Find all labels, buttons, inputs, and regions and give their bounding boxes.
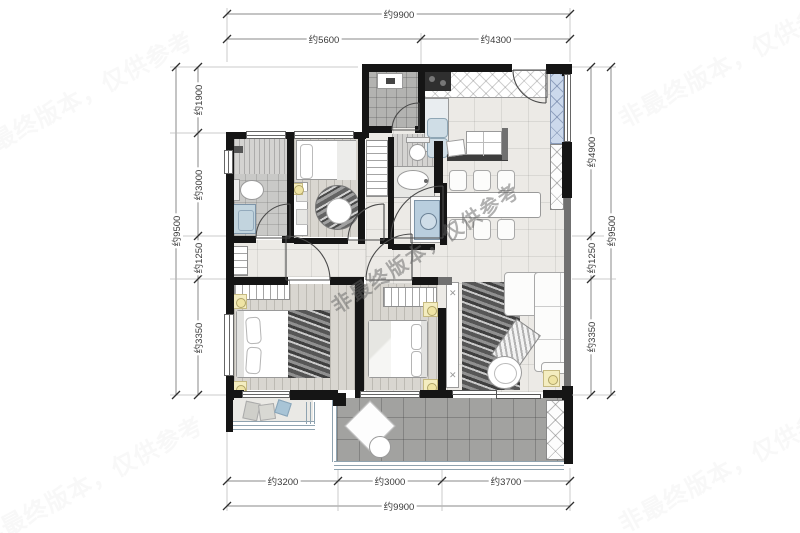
nightstand-lamp-icon [423,302,438,317]
dim-right-seg3: 约3350 [584,320,598,355]
dim-left-seg2: 约3000 [191,168,205,203]
wall [226,277,288,285]
dim-left-seg4: 约3350 [191,321,205,356]
watermark-corner: 非最终版本，仅供参考 [0,406,209,533]
accent-chair [487,356,522,389]
sliding-door-panel [452,390,497,395]
wall [564,198,571,388]
terrace-railing [231,421,315,433]
entry-cabinet-glass [550,70,564,144]
countertop-item [446,139,466,157]
watermark-corner: 非最终版本，仅供参考 [0,21,199,169]
floor-corridor [230,240,366,277]
wall [543,390,568,398]
dim-right-total: 约9500 [604,214,618,249]
sofa-body [534,272,568,372]
window [224,150,233,174]
shower-unit-icon [233,204,256,234]
sliding-door-panel [496,394,541,399]
wall [388,137,394,249]
wall [415,126,425,133]
corridor-cabinet [232,246,248,276]
stove-icon [425,72,451,91]
dim-top-seg1: 约5600 [307,32,342,46]
wall [333,393,346,406]
console-partition [502,128,508,160]
round-lounge-chair [315,185,360,230]
wall [362,64,512,72]
floor-lamp-icon [543,370,560,387]
dim-right-seg1: 约4900 [584,135,598,170]
toilet-bowl-icon [240,180,264,200]
window [242,391,290,398]
dim-bottom-total: 约9900 [382,499,417,513]
wall-fixture-icon [233,146,243,153]
toilet-bowl-icon [409,144,426,161]
dim-left-seg3: 约1250 [191,241,205,276]
wall [282,236,294,243]
toilet-tank-icon [406,137,430,143]
dining-chair [497,219,515,240]
bathroom-sink-icon [377,73,403,89]
balcony-railing-left [332,400,338,462]
wall [294,238,348,244]
wall [562,142,572,198]
toilet-tank-icon [233,179,240,201]
balcony-cabinet [546,400,565,460]
floorplan-canvas: ✕ ✕ [0,0,800,533]
wall [228,236,256,243]
wall [418,72,425,130]
watermark-corner: 非最终版本，仅供参考 [611,0,800,134]
terrace-railing-corner [306,402,316,424]
dim-bottom-seg2: 约3000 [373,474,408,488]
bedroom3-bed [368,320,428,378]
window [294,131,354,139]
window [224,314,234,376]
dining-chair [449,170,467,191]
wall [438,308,446,392]
bedroom2-wardrobe [366,140,388,197]
tv-cabinet: ✕ ✕ [446,282,459,388]
master-bed-blanket [288,310,330,378]
sink-basin-icon [427,118,448,138]
wall [226,398,233,432]
watermark-corner: 非最终版本，仅供参考 [611,391,800,533]
window [564,74,571,142]
dim-left-seg1: 约1900 [191,83,205,118]
bedroom2-bed [296,140,356,180]
wall [287,137,294,237]
wall [564,398,573,464]
window [360,391,420,398]
wall [412,277,438,285]
wall [366,126,392,133]
window [246,131,286,139]
balcony-railing [334,461,564,470]
countertop-appliance [466,131,502,155]
wall [420,390,453,398]
dim-right-seg2: 约1250 [584,241,598,276]
floor-bathroom-left-drying [234,138,287,174]
dim-top-seg2: 约4300 [479,32,514,46]
wall [358,137,365,244]
nightstand-lamp-icon [233,294,247,309]
vanity-basin-icon [397,170,429,190]
wall [290,390,338,400]
dim-bottom-seg3: 约3700 [489,474,524,488]
dim-bottom-seg1: 约3200 [266,474,301,488]
dim-top-total: 约9900 [382,7,417,21]
balcony-stool [369,436,391,458]
wall [438,277,452,285]
dim-left-total: 约9500 [169,214,183,249]
